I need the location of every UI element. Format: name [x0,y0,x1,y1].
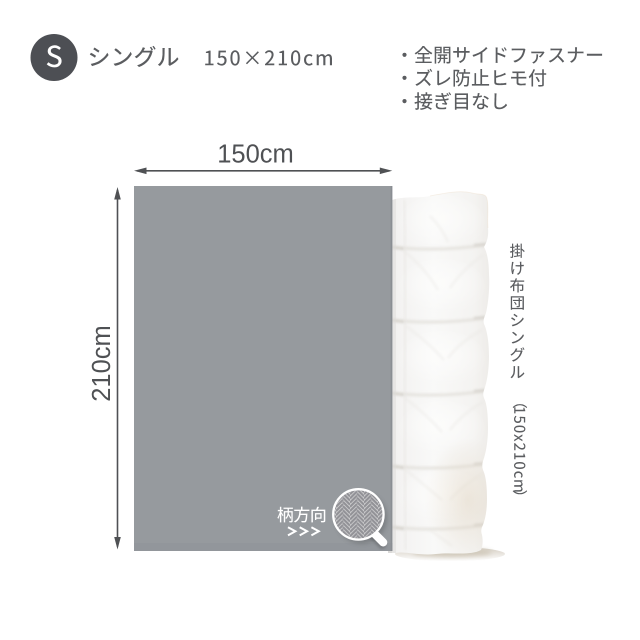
svg-text:210cm: 210cm [88,325,116,402]
svg-text:150cm: 150cm [217,141,294,169]
